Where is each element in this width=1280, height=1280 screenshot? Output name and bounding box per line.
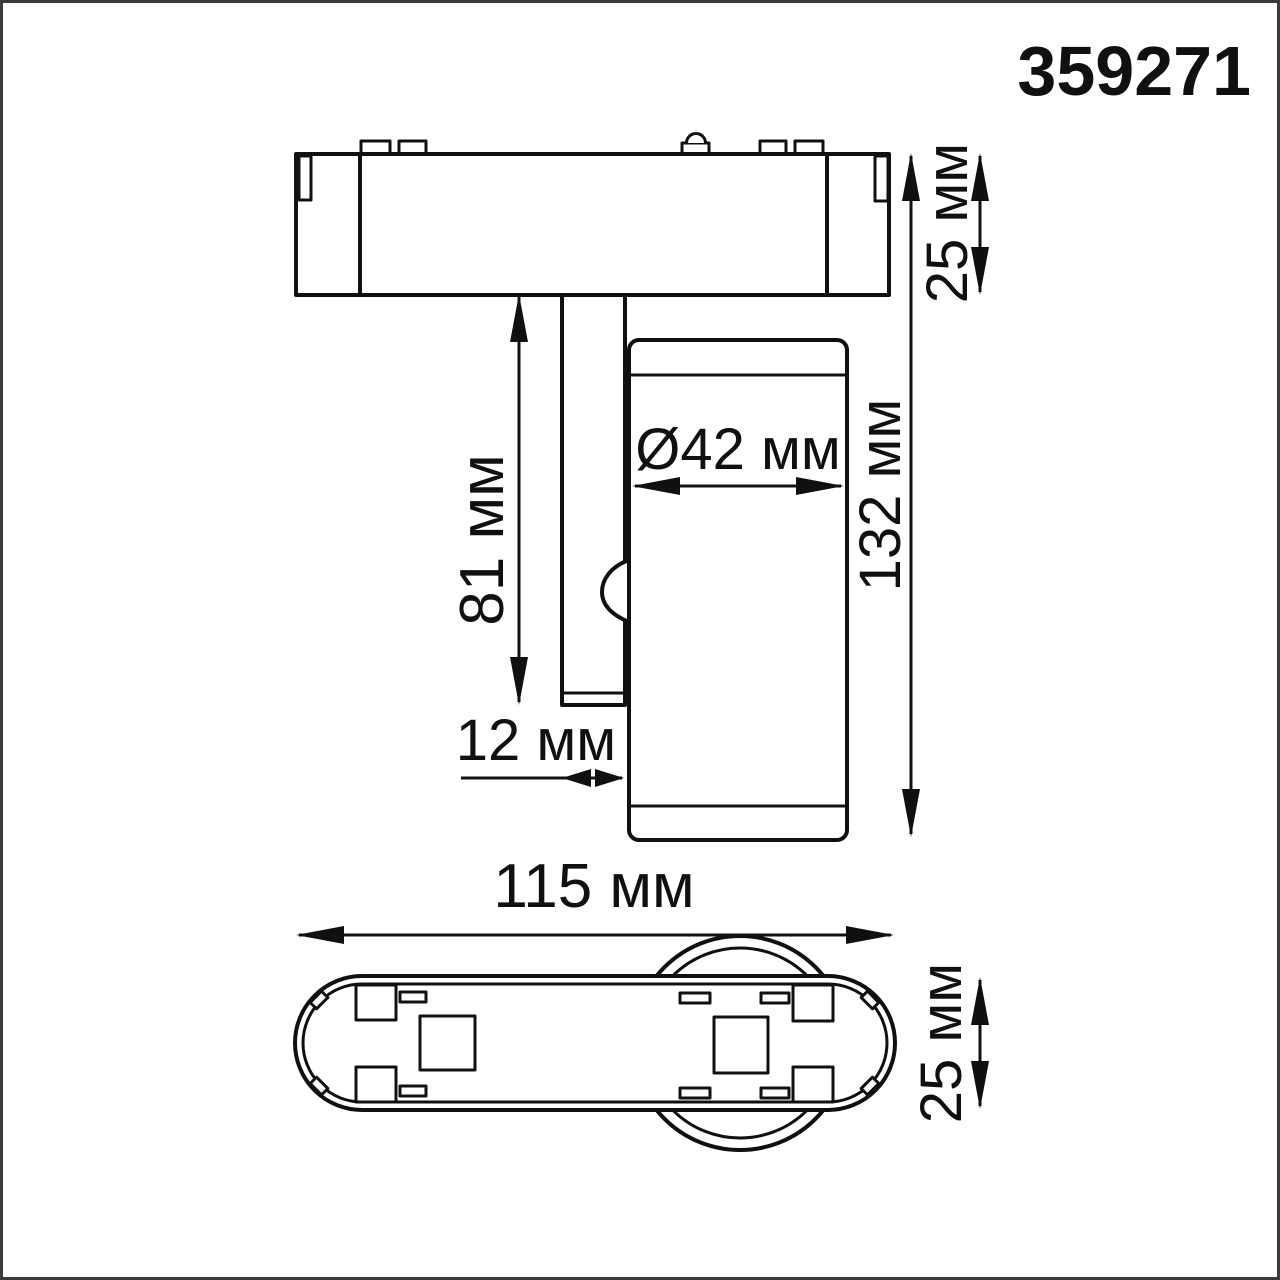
dimension-label-adapter-height: 25 мм	[915, 143, 980, 303]
contact-slot	[400, 1086, 426, 1096]
dimension-label-head-diameter: Ø42 мм	[635, 417, 841, 482]
dimension-adapter-height: 25 мм	[915, 143, 980, 303]
magnet-pad	[420, 1016, 475, 1070]
mount-pad	[793, 1067, 833, 1102]
dimension-plate-length: 115 мм	[299, 852, 891, 935]
contact-slot	[761, 993, 789, 1003]
contact-slot	[400, 992, 426, 1002]
dimension-label-total-height: 132 мм	[848, 399, 913, 592]
technical-drawing: 25 мм 132 мм 81 мм Ø42 мм	[3, 3, 1277, 1277]
track-adapter-contacts	[361, 134, 823, 155]
dimension-label-stem-length: 81 мм	[448, 454, 517, 625]
side-view: 25 мм 132 мм 81 мм Ø42 мм	[296, 134, 980, 841]
dimension-label-plate-width: 25 мм	[909, 963, 974, 1123]
product-code: 359271	[1017, 32, 1251, 110]
stem	[562, 295, 625, 705]
left-flange-notch	[299, 156, 311, 200]
bottom-view: 115 мм 25 мм	[295, 852, 980, 1150]
contact-slot	[761, 1088, 789, 1098]
track-adapter	[296, 154, 889, 295]
adapter-outline	[296, 154, 889, 295]
dimension-stem-length: 81 мм	[448, 297, 519, 702]
mount-pad	[356, 985, 396, 1020]
mount-pad	[793, 985, 833, 1021]
drawing-sheet: 25 мм 132 мм 81 мм Ø42 мм	[0, 0, 1280, 1280]
dimension-label-stem-width: 12 мм	[456, 708, 616, 773]
contact-slot	[680, 993, 710, 1003]
dimension-plate-width: 25 мм	[909, 963, 980, 1123]
dimension-stem-width: 12 мм	[456, 708, 624, 787]
stem-body	[562, 295, 625, 705]
lock-button-dome	[687, 134, 706, 144]
dimension-label-plate-length: 115 мм	[493, 852, 694, 921]
contact-slot	[680, 1088, 710, 1098]
right-flange-notch	[875, 156, 888, 201]
lamp-head-body	[629, 340, 847, 840]
magnet-pad	[714, 1017, 768, 1073]
lamp-head	[602, 340, 847, 840]
dimension-head-diameter: Ø42 мм	[635, 417, 841, 486]
mount-pad	[356, 1067, 396, 1102]
